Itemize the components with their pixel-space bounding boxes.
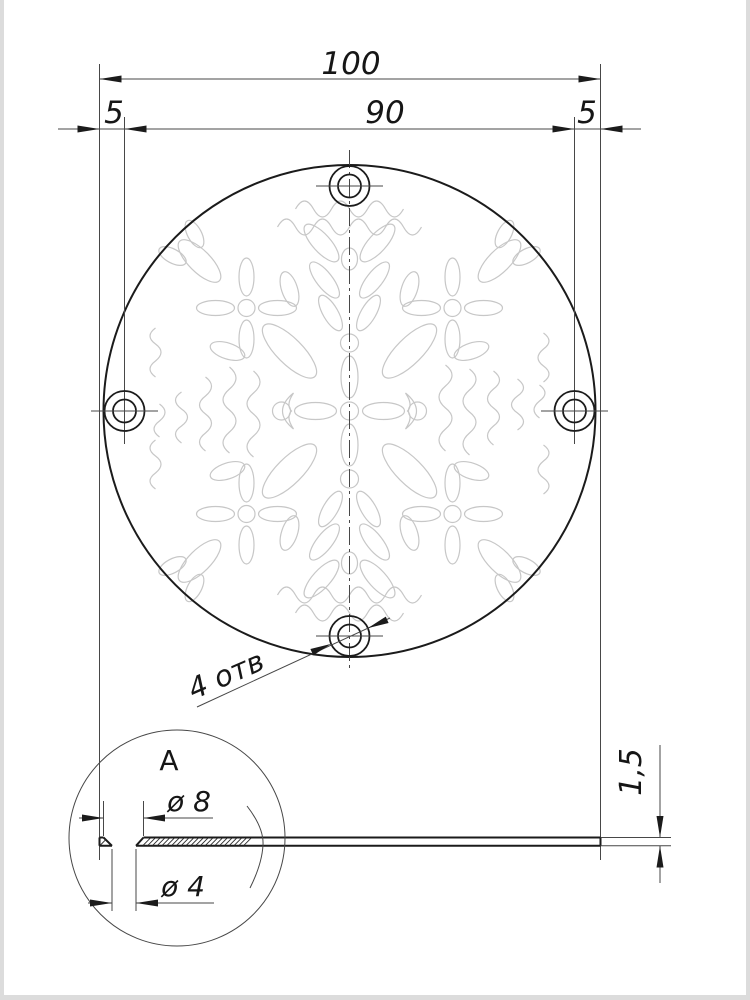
- arrowhead: [368, 617, 389, 629]
- arrowhead: [136, 900, 158, 907]
- arrowhead: [579, 76, 601, 83]
- dimension-overall: 100: [100, 46, 601, 83]
- arrowhead: [100, 76, 122, 83]
- arrowhead: [553, 126, 575, 133]
- dim-bolt-spacing-text: 90: [365, 95, 404, 131]
- drawing-sheet: 100 5 90 5 4 отв А ø 8: [0, 0, 750, 1000]
- arrowhead: [78, 126, 100, 133]
- dimension-bolt-spacing: 5 90 5: [58, 95, 641, 133]
- ornament-diagonal-cluster: [396, 217, 543, 364]
- dim-edge-right-text: 5: [577, 95, 597, 131]
- hole-dia-text: ø 4: [160, 870, 205, 903]
- arrowhead: [90, 900, 112, 907]
- dimension-thickness: 1,5: [601, 745, 672, 883]
- countersink-dia-text: ø 8: [166, 785, 211, 818]
- arrowhead: [601, 126, 623, 133]
- dim-overall-text: 100: [321, 46, 380, 82]
- front-view: [91, 64, 608, 860]
- page-edge-left: [0, 0, 4, 1000]
- page-edge-bottom: [0, 995, 750, 1000]
- arrowhead: [657, 846, 664, 868]
- thickness-text: 1,5: [614, 748, 649, 796]
- dim-edge-left-text: 5: [104, 95, 124, 131]
- detail-label: А: [159, 744, 178, 777]
- arrowhead: [310, 644, 331, 656]
- holes-count-note: 4 отв: [183, 643, 269, 706]
- hatch-sliver: [101, 840, 106, 845]
- arrowhead: [82, 815, 104, 822]
- break-line: [247, 806, 263, 888]
- technical-drawing: 100 5 90 5 4 отв А ø 8: [0, 0, 750, 1000]
- arrowhead: [125, 126, 147, 133]
- plate-section-outline: [100, 838, 601, 846]
- hatch-lines: [143, 838, 251, 845]
- dimension-hole: ø 4: [88, 849, 214, 911]
- arrowhead: [144, 815, 166, 822]
- arrowhead: [657, 816, 664, 838]
- page-edge-right: [746, 0, 750, 1000]
